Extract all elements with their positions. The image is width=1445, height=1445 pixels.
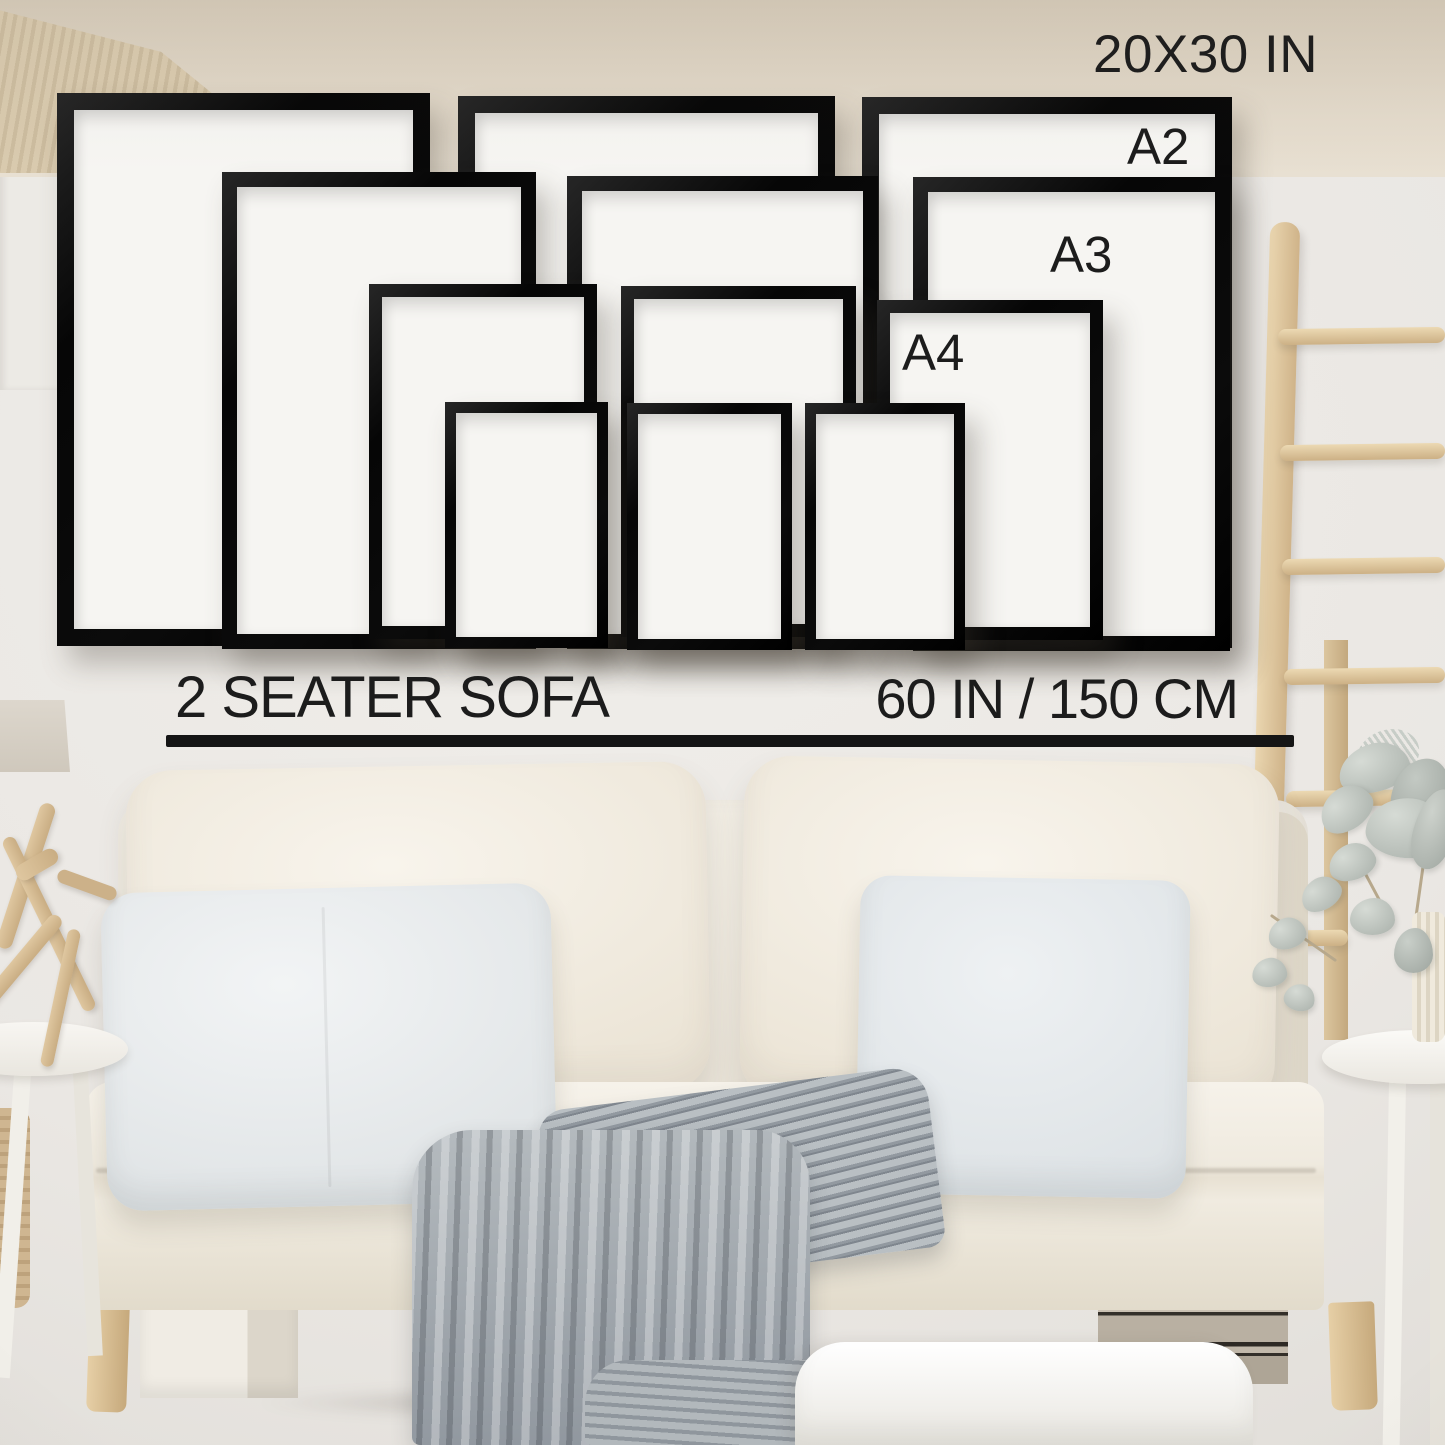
ladder-rung <box>1280 443 1445 461</box>
ladder-rung <box>1282 557 1445 575</box>
frame-mat <box>638 414 781 639</box>
eucalyptus-leaf <box>1350 898 1395 935</box>
label-sofa: 2 SEATER SOFA <box>175 669 609 727</box>
ladder-rung <box>1284 667 1445 685</box>
ladder-rung <box>1278 327 1445 345</box>
floor-pillow <box>795 1342 1253 1445</box>
label-a3: A3 <box>1050 229 1112 280</box>
frame-mat <box>816 414 954 639</box>
lamp-shade <box>0 700 70 772</box>
label-sofa-width: 60 IN / 150 CM <box>875 671 1238 727</box>
label-largest-size: 20X30 IN <box>1093 28 1318 81</box>
label-a2: A2 <box>1127 121 1189 172</box>
sofa-leg-right <box>1328 1301 1378 1411</box>
storage-box-under-sofa <box>140 1306 298 1398</box>
frame-a4-2 <box>627 403 792 650</box>
ladder-leg-back <box>1324 640 1348 1040</box>
living-room-size-guide-scene: 20X30 IN A2 A3 A4 2 SEATER SOFA 60 IN / … <box>0 0 1445 1445</box>
eucalyptus-leaf <box>1394 928 1433 973</box>
label-a4: A4 <box>902 327 964 378</box>
sofa-width-underline <box>166 735 1294 747</box>
side-table-right-leg <box>1430 1062 1445 1445</box>
frame-a4-3 <box>805 403 965 650</box>
frame-mat <box>456 413 597 637</box>
frame-a4-1 <box>445 402 608 648</box>
